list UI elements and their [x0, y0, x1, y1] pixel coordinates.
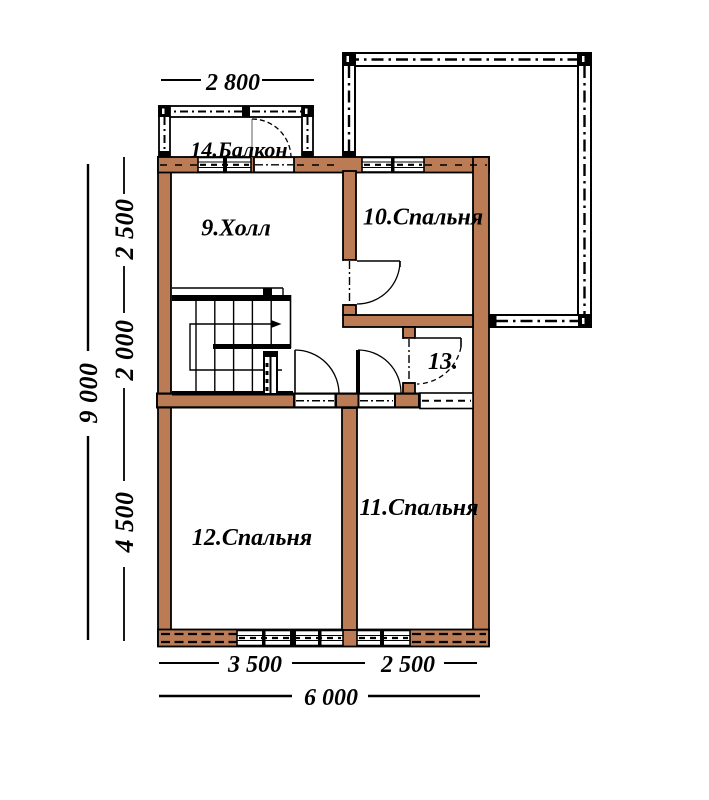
svg-text:11.Спальня: 11.Спальня — [359, 495, 478, 521]
svg-text:13.: 13. — [428, 349, 458, 375]
svg-text:2 000: 2 000 — [110, 320, 139, 382]
svg-text:2 800: 2 800 — [205, 70, 260, 96]
svg-text:14.Балкон: 14.Балкон — [190, 137, 287, 162]
svg-text:9.Холл: 9.Холл — [201, 216, 271, 242]
svg-text:2 500: 2 500 — [110, 199, 139, 261]
svg-text:3 500: 3 500 — [227, 652, 282, 678]
svg-text:4 500: 4 500 — [110, 492, 139, 554]
svg-text:10.Спальня: 10.Спальня — [363, 205, 483, 231]
svg-text:9 000: 9 000 — [74, 363, 103, 424]
svg-text:6 000: 6 000 — [304, 685, 358, 711]
svg-text:12.Спальня: 12.Спальня — [192, 525, 312, 551]
svg-text:2 500: 2 500 — [380, 652, 435, 678]
